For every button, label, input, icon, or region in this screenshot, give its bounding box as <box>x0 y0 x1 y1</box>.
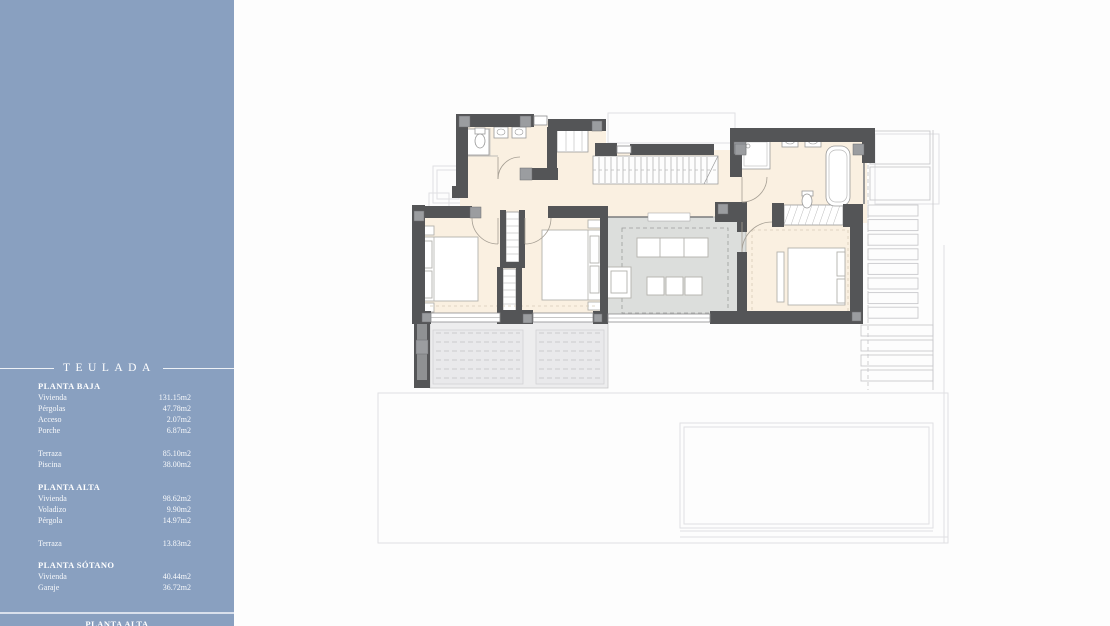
measure-row: Vivienda 40.44m2 <box>38 571 191 582</box>
project-title: TEULADA <box>63 362 156 374</box>
sofa <box>637 238 708 257</box>
staircase <box>593 156 718 184</box>
sink-icon <box>494 127 508 138</box>
measure-row: Vivienda 131.15m2 <box>38 392 191 403</box>
bed-2 <box>542 220 602 310</box>
measure-row: Acceso 2.07m2 <box>38 414 191 425</box>
title-rule-left <box>0 368 54 369</box>
measure-row: Voladizo 9.90m2 <box>38 504 191 515</box>
measure-row: Terraza 85.10m2 <box>38 448 191 459</box>
measure-row: Pérgola 14.97m2 <box>38 515 191 526</box>
sink-icon <box>512 127 526 138</box>
sidebar-title-row: TEULADA <box>0 362 234 374</box>
section-heading-planta-alta: PLANTA ALTA <box>38 482 191 493</box>
measure-row: Porche 6.87m2 <box>38 425 191 436</box>
measure-row: Pérgolas 47.78m2 <box>38 403 191 414</box>
coffee-tables <box>647 277 702 295</box>
pergola-slats <box>861 130 933 390</box>
section-heading-planta-sotano: PLANTA SÓTANO <box>38 560 191 571</box>
bed-1 <box>420 226 478 312</box>
measure-row: Piscina 38.00m2 <box>38 459 191 470</box>
toilet-tank <box>475 128 485 134</box>
measure-row: Garaje 36.72m2 <box>38 582 191 593</box>
measure-row: Terraza 13.83m2 <box>38 538 191 549</box>
next-section-heading: PLANTA ALTA <box>0 619 234 626</box>
toilet-icon <box>475 134 485 148</box>
title-rule-right <box>163 368 234 369</box>
terrace <box>414 314 608 388</box>
measure-row: Vivienda 98.62m2 <box>38 493 191 504</box>
living-void <box>603 213 746 320</box>
section-heading-planta-baja: PLANTA BAJA <box>38 381 191 392</box>
pool-outline <box>680 423 933 528</box>
area-summary: PLANTA BAJA Vivienda 131.15m2 Pérgolas 4… <box>38 381 191 593</box>
sidebar-bottom-rule <box>0 612 234 614</box>
toilet-icon <box>802 194 812 208</box>
armchair <box>607 267 631 298</box>
sidebar: TEULADA PLANTA BAJA Vivienda 131.15m2 Pé… <box>0 0 234 626</box>
